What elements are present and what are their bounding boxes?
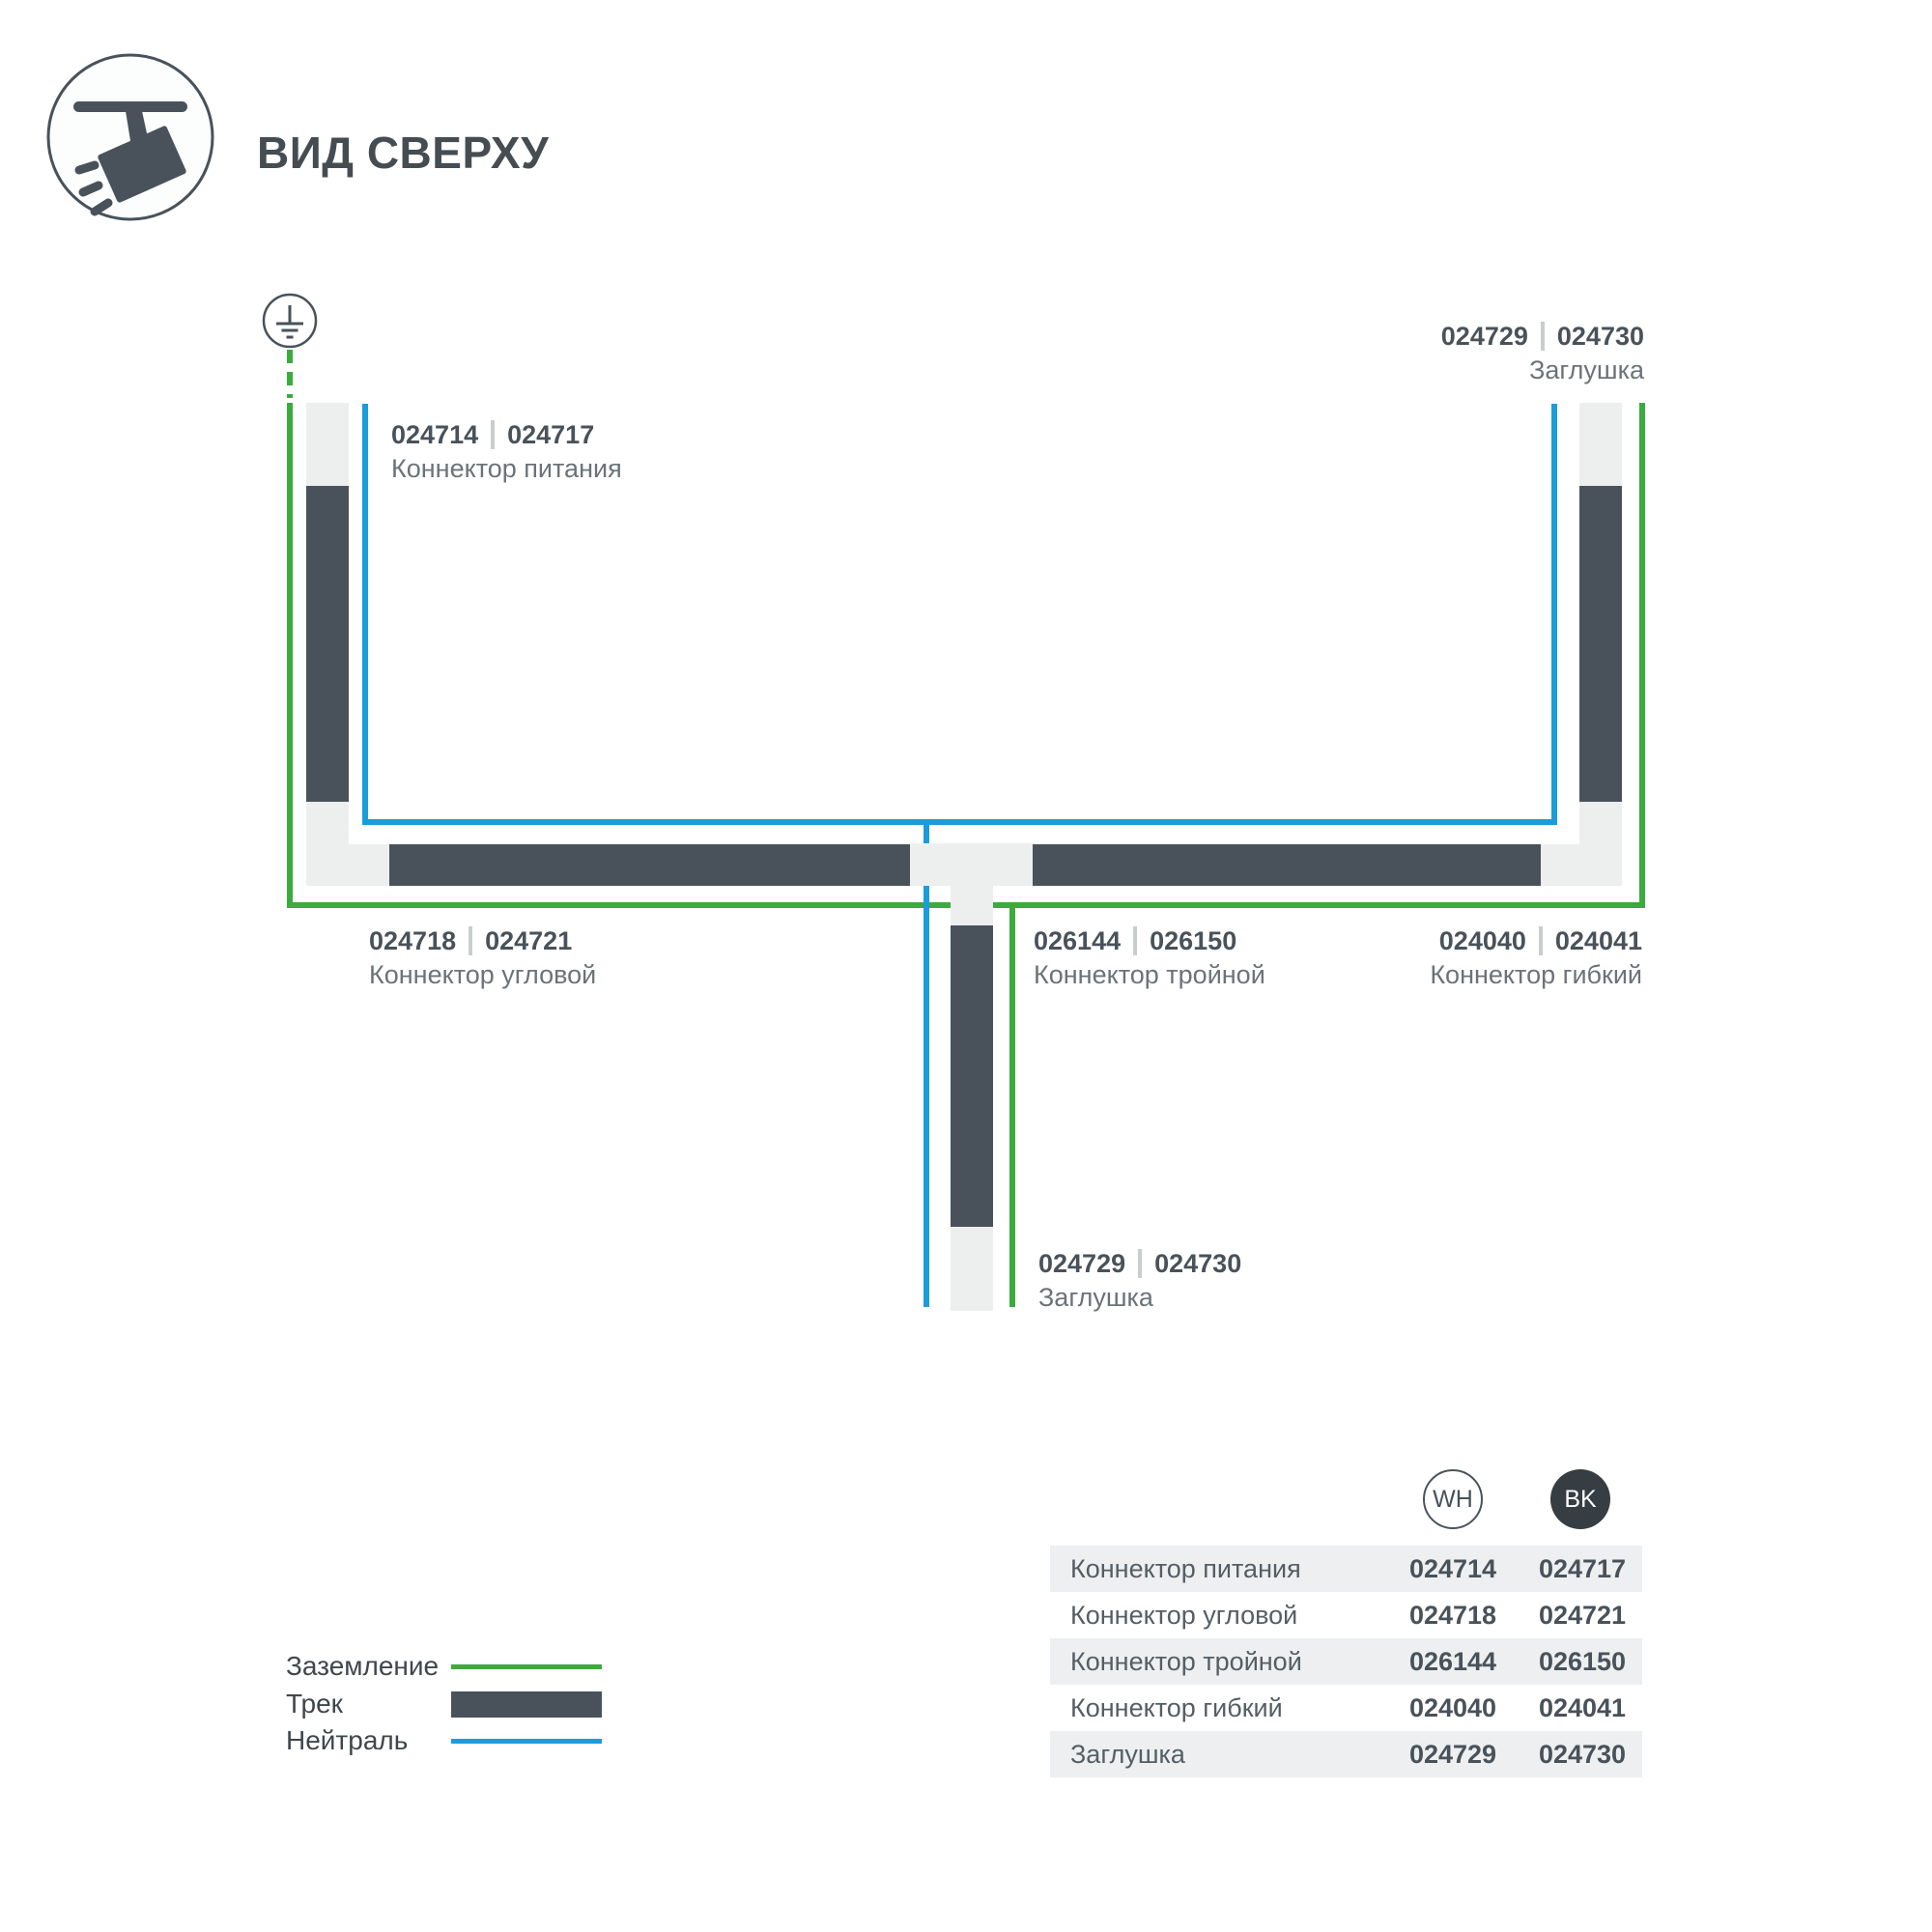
legend-row-ground: Заземление xyxy=(286,1647,602,1686)
label-power-connector: 024714 024717 Коннектор питания xyxy=(391,419,622,484)
legend-row-neutral: Нейтраль xyxy=(286,1721,602,1760)
ground-line-branch xyxy=(1009,908,1015,1307)
table-row: Коннектор тройной 026144 026150 xyxy=(1050,1638,1642,1685)
legend-swatch-ground-line xyxy=(451,1664,602,1669)
code-bk: 026150 xyxy=(1150,925,1236,956)
row-code-wh: 026144 xyxy=(1403,1638,1503,1685)
separator-bar xyxy=(1541,322,1545,351)
label-codes: 024714 024717 xyxy=(391,419,622,450)
table-row: Заглушка 024729 024730 xyxy=(1050,1731,1642,1777)
separator-bar xyxy=(1539,926,1543,955)
label-name: Коннектор питания xyxy=(391,453,622,484)
ground-line-left xyxy=(287,403,293,908)
code-wh: 026144 xyxy=(1034,925,1121,956)
code-wh: 024729 xyxy=(1441,321,1528,352)
code-wh: 024718 xyxy=(369,925,456,956)
label-corner-connector: 024718 024721 Коннектор угловой xyxy=(369,925,596,990)
separator-bar xyxy=(491,420,495,449)
code-bk: 024721 xyxy=(485,925,572,956)
legend-swatch-neutral-line xyxy=(451,1739,602,1744)
row-code-wh: 024729 xyxy=(1403,1731,1503,1777)
triple-connector xyxy=(910,843,1033,886)
track-segment-horizontal-left xyxy=(389,844,910,886)
label-end-cap-bottom: 024729 024730 Заглушка xyxy=(1038,1248,1241,1313)
label-codes: 024729 024730 xyxy=(1441,321,1644,352)
table-row: Коннектор гибкий 024040 024041 xyxy=(1050,1685,1642,1731)
code-wh: 024729 xyxy=(1038,1248,1125,1279)
corner-connector-left xyxy=(349,844,389,886)
code-wh: 024040 xyxy=(1439,925,1526,956)
separator-bar xyxy=(1138,1249,1142,1278)
code-bk: 024730 xyxy=(1154,1248,1241,1279)
neutral-line-left xyxy=(362,404,368,825)
label-end-cap-top: 024729 024730 Заглушка xyxy=(1441,321,1644,385)
label-name: Заглушка xyxy=(1038,1282,1241,1313)
bk-label: BK xyxy=(1564,1486,1596,1514)
neutral-line-right xyxy=(1551,404,1557,825)
code-wh: 024714 xyxy=(391,419,478,450)
label-name: Заглушка xyxy=(1441,355,1644,385)
row-code-bk: 024717 xyxy=(1532,1546,1633,1592)
row-code-bk: 026150 xyxy=(1532,1638,1633,1685)
page-title: ВИД СВЕРХУ xyxy=(257,128,549,177)
column-bk-badge: BK xyxy=(1550,1469,1610,1529)
earth-ground-icon xyxy=(261,292,319,350)
legend-label-ground: Заземление xyxy=(286,1651,439,1682)
track-segment-center-vertical xyxy=(951,925,993,1227)
separator-bar xyxy=(469,926,472,955)
label-codes: 024040 024041 xyxy=(1430,925,1642,956)
row-code-wh: 024040 xyxy=(1403,1685,1503,1731)
row-code-bk: 024721 xyxy=(1532,1592,1633,1638)
track-segment-right-vertical xyxy=(1579,486,1622,802)
end-cap-bottom xyxy=(951,1227,993,1311)
neutral-line-horizontal xyxy=(362,819,1557,825)
table-row: Коннектор питания 024714 024717 xyxy=(1050,1546,1642,1592)
page: ВИД СВЕРХУ 024714 024717 Коннектор п xyxy=(0,0,1932,1932)
table-row: Коннектор угловой 024718 024721 xyxy=(1050,1592,1642,1638)
row-code-bk: 024730 xyxy=(1532,1731,1633,1777)
track-spotlight-icon xyxy=(46,53,214,221)
track-segment-horizontal-right xyxy=(1033,844,1541,886)
label-name: Коннектор тройной xyxy=(1034,959,1265,990)
legend-label-track: Трек xyxy=(286,1689,343,1719)
separator-bar xyxy=(1133,926,1137,955)
code-bk: 024730 xyxy=(1557,321,1644,352)
ground-line-right xyxy=(1639,403,1645,908)
neutral-line-branch xyxy=(923,825,929,1307)
track-segment-left-vertical xyxy=(306,486,349,802)
label-codes: 024729 024730 xyxy=(1038,1248,1241,1279)
triple-connector-stem xyxy=(951,886,993,925)
row-code-wh: 024718 xyxy=(1403,1592,1503,1638)
wh-label: WH xyxy=(1433,1486,1473,1514)
label-name: Коннектор гибкий xyxy=(1430,959,1642,990)
label-codes: 024718 024721 xyxy=(369,925,596,956)
legend-swatch-track xyxy=(451,1691,602,1718)
code-bk: 024041 xyxy=(1555,925,1642,956)
label-codes: 026144 026150 xyxy=(1034,925,1265,956)
column-wh-badge: WH xyxy=(1423,1469,1483,1529)
ground-line-dashed xyxy=(287,350,293,398)
label-flexible-connector: 024040 024041 Коннектор гибкий xyxy=(1430,925,1642,990)
code-bk: 024717 xyxy=(507,419,594,450)
legend-row-track: Трек xyxy=(286,1685,602,1723)
label-triple-connector: 026144 026150 Коннектор тройной xyxy=(1034,925,1265,990)
row-code-wh: 024714 xyxy=(1403,1546,1503,1592)
label-name: Коннектор угловой xyxy=(369,959,596,990)
legend-label-neutral: Нейтраль xyxy=(286,1725,408,1756)
flexible-connector-right xyxy=(1541,844,1579,886)
row-code-bk: 024041 xyxy=(1532,1685,1633,1731)
